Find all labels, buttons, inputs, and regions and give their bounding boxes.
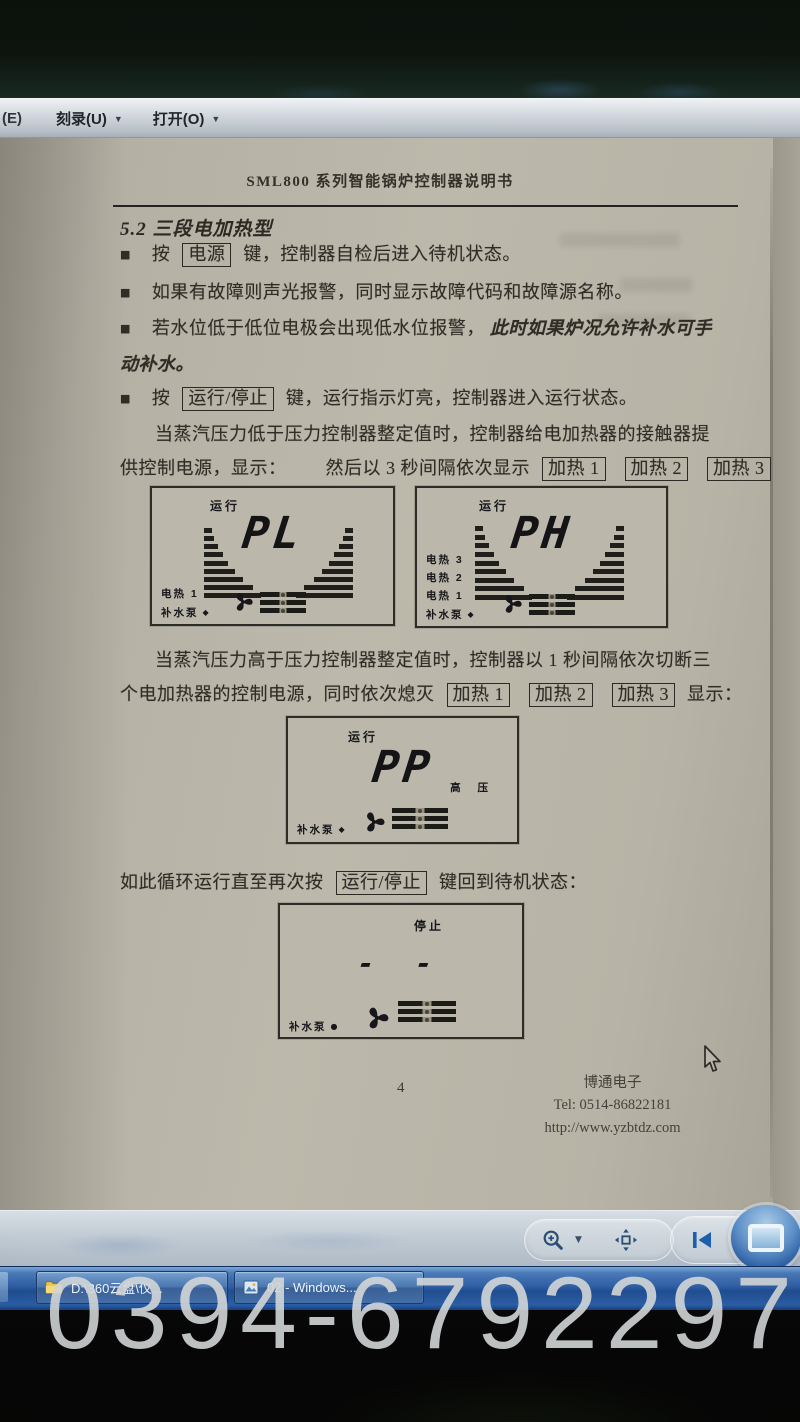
magnifier-plus-icon xyxy=(541,1228,565,1252)
heat3-key-box: 加热 3 xyxy=(707,457,771,481)
pump-label: 补水泵◆ xyxy=(297,822,347,837)
taskbar-button-label: D:\360云盘\仪... xyxy=(71,1278,163,1297)
lcd-value: - - xyxy=(356,947,447,980)
paragraph-high-line2: 个电加热器的控制电源，同时依次熄灭 加热 1 加热 2 加热 3 显示： xyxy=(120,680,760,707)
taskbar-edge-item xyxy=(0,1272,8,1302)
paragraph-text: 显示： xyxy=(687,684,743,704)
heater-bars-icon xyxy=(260,592,306,616)
heater-bars-icon xyxy=(392,808,448,832)
high-pressure-label: 高 压 xyxy=(450,780,495,795)
paragraph-text: 键回到待机状态： xyxy=(439,872,587,892)
fan-icon xyxy=(232,591,254,613)
previous-icon xyxy=(689,1229,715,1251)
zoom-button[interactable] xyxy=(539,1226,567,1254)
header-rule xyxy=(113,205,738,207)
mouse-cursor-icon xyxy=(698,1044,724,1074)
lcd-figure-ph: 运行 PH 电热 3 电热 2 电热 1 补水泵◆ xyxy=(415,486,668,628)
bullet-item-run: ■ 按 运行/停止 键，运行指示灯亮，控制器进入运行状态。 xyxy=(120,384,760,411)
paragraph-low-line2: 供控制电源，显示： 然后以 3 秒间隔依次显示 加热 1 加热 2 加热 3 xyxy=(120,454,760,481)
menu-item-burn[interactable]: 刻录(U) ▼ xyxy=(56,108,123,129)
paragraph-text: 然后以 3 秒间隔依次显示 xyxy=(326,458,531,478)
bullet-text-italic: 此时如果炉况允许补水可手 xyxy=(490,318,712,338)
paragraph-text: 供控制电源，显示： xyxy=(120,458,287,478)
bullet-square-icon: ■ xyxy=(120,322,131,335)
heat2-key-box: 加热 2 xyxy=(529,683,593,707)
lcd-status-label: 运行 xyxy=(210,497,240,514)
power-key-box: 电源 xyxy=(182,243,231,267)
chevron-down-icon: ▼ xyxy=(114,114,123,124)
monitor-base-area xyxy=(0,1310,800,1422)
paragraph-text: 如此循环运行直至再次按 xyxy=(120,872,324,892)
bullet-square-icon: ■ xyxy=(120,392,131,405)
menu-item-edge[interactable]: (E) xyxy=(2,110,22,127)
taskbar-button-folder[interactable]: D:\360云盘\仪... xyxy=(36,1271,228,1304)
taskbar-button-label: 02 - Windows... xyxy=(267,1280,357,1295)
fan-icon xyxy=(364,1005,390,1031)
document-header-title: SML800 系列智能锅炉控制器说明书 xyxy=(0,170,760,191)
page-crease xyxy=(770,168,773,1198)
menu-item-open[interactable]: 打开(O) ▼ xyxy=(153,108,221,129)
toolbar-reflection xyxy=(0,1211,520,1267)
heater1-label: 电热 1 xyxy=(161,586,199,601)
bullet-text: 按 xyxy=(152,244,171,264)
website-url: http://www.yzbtdz.com xyxy=(505,1117,720,1139)
level-bargraph-right xyxy=(566,526,624,600)
taskbar-button-photo-viewer[interactable]: 02 - Windows... xyxy=(234,1271,424,1304)
bullet-square-icon: ■ xyxy=(120,248,131,261)
fan-icon xyxy=(362,810,386,834)
menu-bar: (E) 刻录(U) ▼ 打开(O) ▼ xyxy=(0,98,800,138)
footer-contact-block: 博通电子 Tel: 0514-86822181 http://www.yzbtd… xyxy=(505,1072,720,1139)
heater2-label: 电热 2 xyxy=(426,570,464,585)
paragraph-high-line1: 当蒸汽压力高于压力控制器整定值时，控制器以 1 秒间隔依次切断三 xyxy=(155,646,795,672)
pump-label-text: 补水泵 xyxy=(161,607,199,619)
photo-viewer-canvas: SML800 系列智能锅炉控制器说明书 5.2 三段电加热型 ■ 按 电源 键，… xyxy=(0,138,800,1210)
lcd-figure-pl: 运行 PL 电热 1 补水泵◆ xyxy=(150,486,395,626)
lcd-status-label: 运行 xyxy=(479,497,509,514)
bullet-item-fault: ■ 如果有故障则声光报警，同时显示故障代码和故障源名称。 xyxy=(120,278,760,304)
fan-icon xyxy=(501,593,523,615)
pump-indicator-icon: ● xyxy=(331,1022,340,1031)
page-number: 4 xyxy=(397,1080,405,1097)
level-bargraph-right xyxy=(295,528,353,598)
bullet-text: 若水位低于低位电极会出现低水位报警， xyxy=(152,318,485,338)
run-stop-key-box: 运行/停止 xyxy=(182,387,274,411)
monitor-bezel-top xyxy=(0,0,800,98)
bullet-text: 如果有故障则声光报警，同时显示故障代码和故障源名称。 xyxy=(152,282,633,302)
pump-label-text: 补水泵 xyxy=(426,609,464,621)
fit-size-icon xyxy=(614,1228,638,1252)
pump-indicator-icon: ◆ xyxy=(339,825,347,834)
level-bargraph-left xyxy=(204,528,262,598)
bullet-item-lowwater: ■ 若水位低于低位电极会出现低水位报警， 此时如果炉况允许补水可手 xyxy=(120,314,760,340)
pump-label-text: 补水泵 xyxy=(297,824,335,836)
lcd-value: PP xyxy=(369,742,436,793)
photographed-monitor: (E) 刻录(U) ▼ 打开(O) ▼ SML800 系列智能锅炉控制器说明书 … xyxy=(0,0,800,1422)
photo-viewer-icon xyxy=(243,1280,259,1295)
heat2-key-box: 加热 2 xyxy=(625,457,689,481)
paragraph-text: 个电加热器的控制电源，同时依次熄灭 xyxy=(120,684,435,704)
pump-label: 补水泵● xyxy=(289,1019,339,1034)
heater-bars-icon xyxy=(398,1001,456,1025)
loop-instruction-line: 如此循环运行直至再次按 运行/停止 键回到待机状态： xyxy=(120,868,760,895)
pump-label-text: 补水泵 xyxy=(289,1021,327,1033)
section-heading: 5.2 三段电加热型 xyxy=(120,214,273,241)
bullet-text-italic: 动补水。 xyxy=(120,354,194,374)
phone-number: Tel: 0514-86822181 xyxy=(505,1094,720,1116)
pump-label: 补水泵◆ xyxy=(161,605,211,620)
actual-size-button[interactable] xyxy=(612,1226,640,1254)
previous-image-button[interactable] xyxy=(687,1227,717,1253)
bullet-text: 按 xyxy=(152,388,171,408)
pump-indicator-icon: ◆ xyxy=(468,610,476,619)
menu-item-burn-label: 刻录(U) xyxy=(56,108,107,129)
chevron-down-icon: ▼ xyxy=(211,114,220,124)
slideshow-icon xyxy=(748,1224,784,1252)
pump-indicator-icon: ◆ xyxy=(203,608,211,617)
heat1-key-box: 加热 1 xyxy=(447,683,511,707)
heat1-key-box: 加热 1 xyxy=(542,457,606,481)
paragraph-low-line1: 当蒸汽压力低于压力控制器整定值时，控制器给电加热器的接触器提 xyxy=(155,420,795,446)
bullet-item-lowwater-line2: 动补水。 xyxy=(120,350,760,376)
bullet-item-power: ■ 按 电源 键，控制器自检后进入待机状态。 xyxy=(120,240,760,267)
page-shadow xyxy=(0,138,130,1210)
level-bargraph-left xyxy=(475,526,533,600)
heater1-label: 电热 1 xyxy=(426,588,464,603)
bullet-text: 键，控制器自检后进入待机状态。 xyxy=(243,244,521,264)
heater3-label: 电热 3 xyxy=(426,552,464,567)
run-stop-key-box: 运行/停止 xyxy=(336,871,428,895)
pump-label: 补水泵◆ xyxy=(426,607,476,622)
heat3-key-box: 加热 3 xyxy=(612,683,676,707)
heater-bars-icon xyxy=(529,594,575,618)
lcd-figure-stop: 停止 - - 补水泵● xyxy=(278,903,524,1039)
bullet-text: 键，运行指示灯亮，控制器进入运行状态。 xyxy=(286,388,638,408)
play-slideshow-button[interactable] xyxy=(731,1205,800,1271)
lcd-figure-pp: 运行 PP 高 压 补水泵◆ xyxy=(286,716,519,844)
zoom-controls-group: ▼ xyxy=(524,1219,674,1261)
bullet-square-icon: ■ xyxy=(120,286,131,299)
lcd-status-label: 停止 xyxy=(414,917,444,934)
scanned-page-edge xyxy=(773,138,800,1210)
menu-item-open-label: 打开(O) xyxy=(153,108,205,129)
company-name: 博通电子 xyxy=(505,1072,720,1094)
lcd-status-label: 运行 xyxy=(348,728,378,745)
zoom-dropdown-button[interactable]: ▼ xyxy=(573,1233,584,1247)
folder-icon xyxy=(45,1280,63,1295)
